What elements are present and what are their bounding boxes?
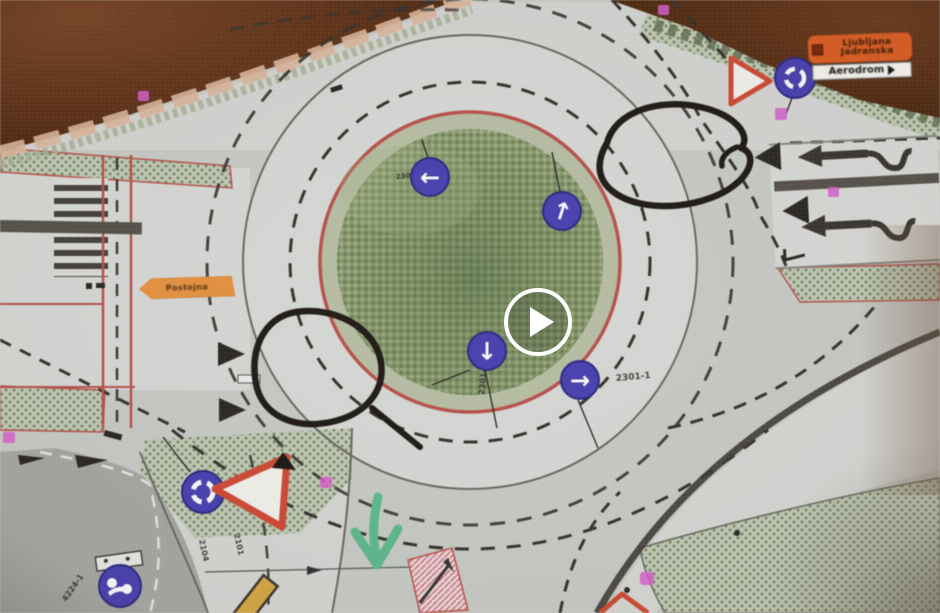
play-icon [530,307,554,337]
direction-board: Ljubljana Jadranska [808,32,913,64]
aerodrom-sign-text: Aerodrom [828,65,884,77]
motorway-icon [812,44,823,55]
plan-photo: 2301-1 2301-1 2301 2101 2104 4224-1 ← ↑ … [0,0,940,613]
street-arrow-sign-text: Postojna [166,282,209,292]
photo-vignette [0,0,940,613]
video-frame[interactable]: 2301-1 2301-1 2301 2101 2104 4224-1 ← ↑ … [0,0,940,613]
plan-drawing: 2301-1 2301-1 2301 2101 2104 4224-1 ← ↑ … [0,0,940,613]
street-arrow-sign: Postojna [139,275,236,299]
right-arrow-icon [888,65,895,75]
direction-board-line2: Jadranska [826,46,908,58]
play-button[interactable] [504,288,572,356]
